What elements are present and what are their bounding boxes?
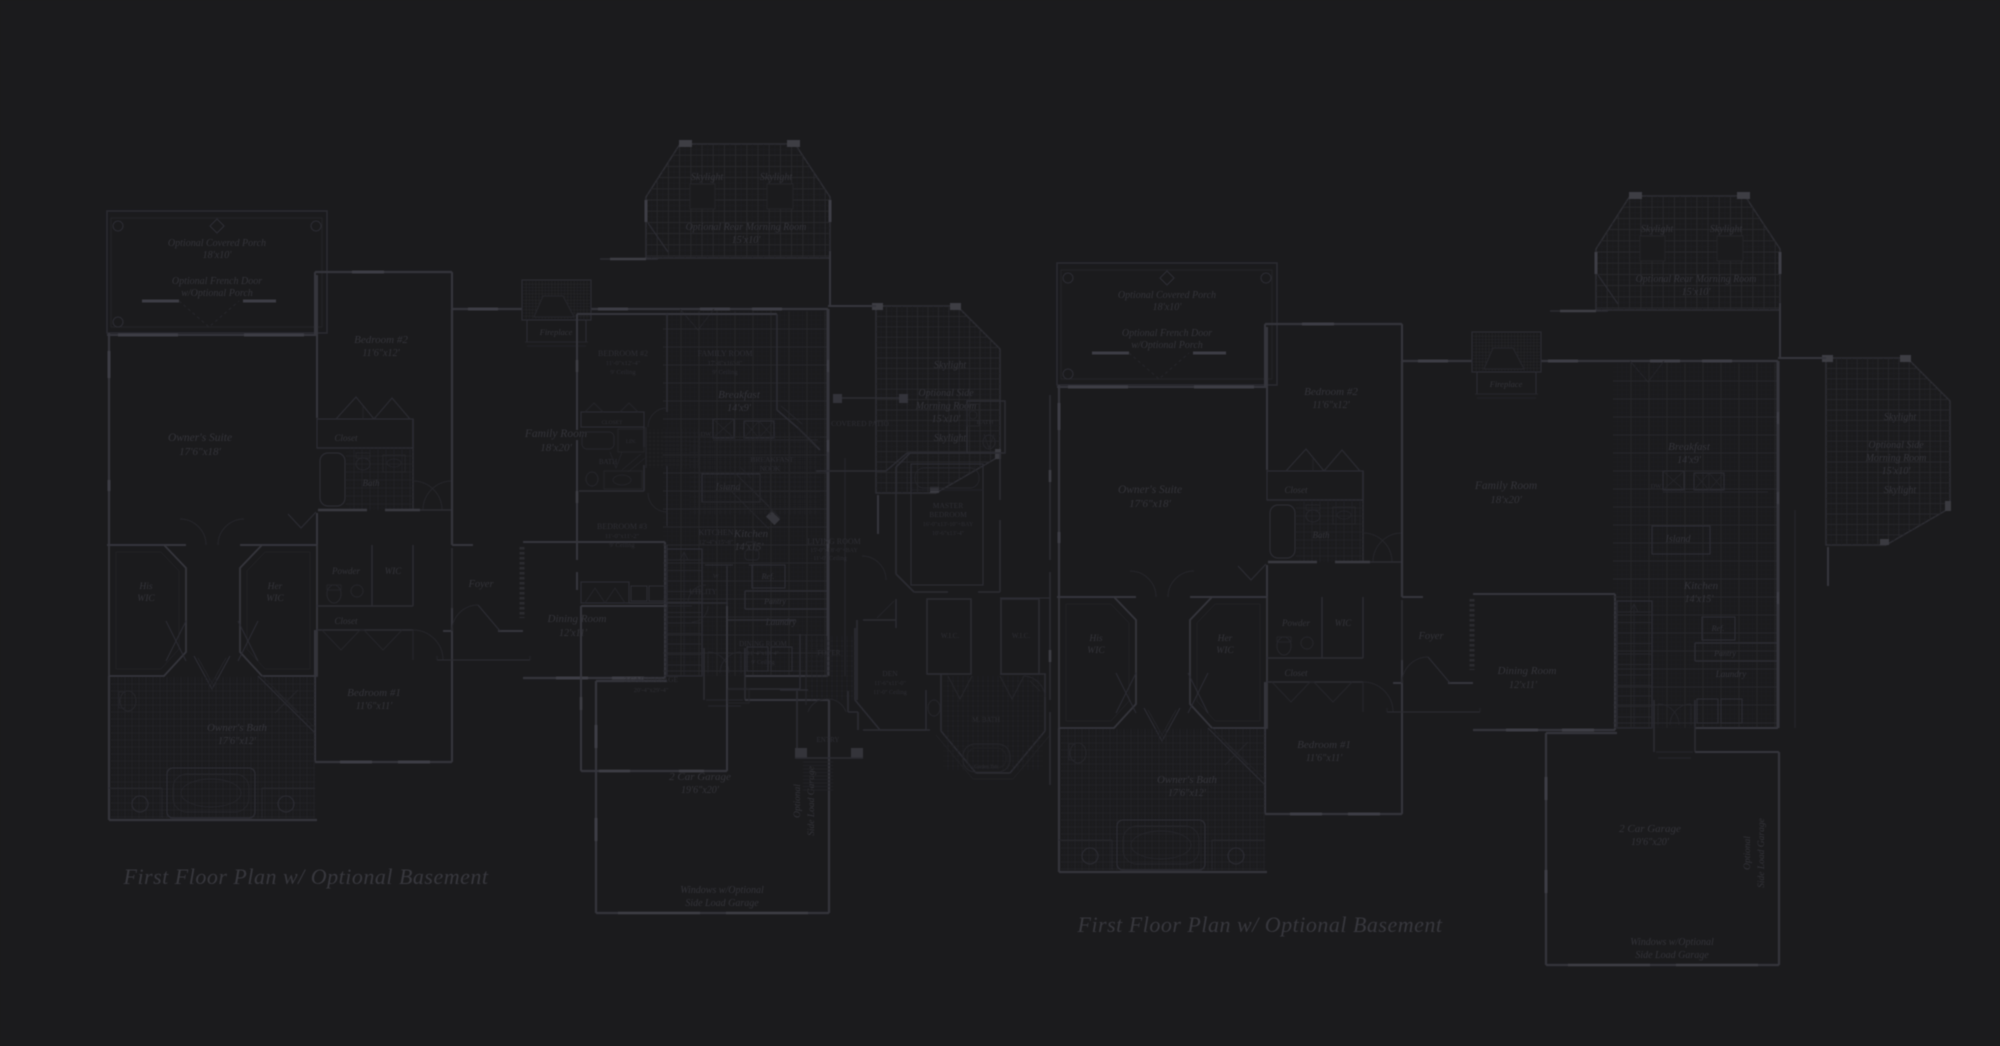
svg-text:Skylight: Skylight <box>934 433 966 444</box>
svg-text:WIC: WIC <box>1216 646 1234 656</box>
svg-text:17'6"x18': 17'6"x18' <box>179 446 221 458</box>
svg-text:Dining Room: Dining Room <box>1497 665 1557 677</box>
svg-text:MASTER: MASTER <box>933 501 963 510</box>
svg-text:WIC: WIC <box>266 594 284 604</box>
svg-text:Optional Side: Optional Side <box>1868 440 1924 451</box>
svg-text:Skylight: Skylight <box>934 360 966 371</box>
svg-text:2 Car Garage: 2 Car Garage <box>1619 823 1681 835</box>
svg-text:Skylight: Skylight <box>1641 224 1673 235</box>
svg-text:WIC: WIC <box>385 566 402 576</box>
svg-text:16'-0"x13'-10"+BAY: 16'-0"x13'-10"+BAY <box>923 522 974 528</box>
svg-text:9' Ceiling: 9' Ceiling <box>712 369 738 376</box>
svg-text:12'x11': 12'x11' <box>1509 680 1538 691</box>
svg-text:11'-0" Ceiling: 11'-0" Ceiling <box>813 556 846 562</box>
svg-text:WIC: WIC <box>1087 646 1105 656</box>
svg-text:BEDROOM: BEDROOM <box>929 510 967 519</box>
svg-text:Closet: Closet <box>1284 668 1308 678</box>
svg-text:BEDROOM #2: BEDROOM #2 <box>598 349 648 358</box>
svg-text:Skylight: Skylight <box>1884 412 1916 423</box>
svg-text:11'6"x12': 11'6"x12' <box>362 348 400 359</box>
svg-text:w/Optional Porch: w/Optional Porch <box>181 288 253 299</box>
svg-text:Owner's Bath: Owner's Bath <box>207 722 268 734</box>
svg-text:17'6"x12': 17'6"x12' <box>1168 788 1207 799</box>
svg-text:Owner's Bath: Owner's Bath <box>1157 774 1218 786</box>
svg-text:Optional Covered Porch: Optional Covered Porch <box>168 238 266 249</box>
svg-text:ENTRY: ENTRY <box>817 736 840 744</box>
svg-text:Side Load Garage: Side Load Garage <box>1757 818 1767 888</box>
svg-text:17'6"x18': 17'6"x18' <box>1129 498 1171 510</box>
svg-text:KITCHEN: KITCHEN <box>698 528 733 537</box>
svg-text:Her: Her <box>1217 634 1233 644</box>
svg-text:Windows w/Optional: Windows w/Optional <box>1630 937 1714 948</box>
svg-text:Bedroom #1: Bedroom #1 <box>1297 739 1351 751</box>
svg-text:Island: Island <box>1665 534 1692 545</box>
svg-text:His: His <box>1088 634 1103 644</box>
svg-text:Kitchen: Kitchen <box>1683 580 1719 592</box>
svg-text:W.I.C.: W.I.C. <box>941 632 959 640</box>
svg-text:Skylight: Skylight <box>760 172 792 183</box>
svg-text:Foyer: Foyer <box>1417 631 1444 642</box>
svg-text:Fireplace: Fireplace <box>539 327 573 337</box>
svg-text:DEN: DEN <box>882 669 898 678</box>
svg-text:UTILITY: UTILITY <box>689 588 717 596</box>
svg-text:18'x10': 18'x10' <box>203 250 233 261</box>
svg-text:Bath: Bath <box>1313 530 1330 540</box>
svg-text:His: His <box>138 582 153 592</box>
svg-text:9' Ceiling: 9' Ceiling <box>751 660 774 666</box>
svg-text:19'6"x20': 19'6"x20' <box>681 785 720 796</box>
svg-text:Ref.: Ref. <box>1711 624 1725 633</box>
svg-text:Closet: Closet <box>334 433 358 443</box>
svg-text:11'-0" Ceiling: 11'-0" Ceiling <box>873 690 906 696</box>
svg-text:14'x15': 14'x15' <box>735 542 765 553</box>
svg-text:Skylight: Skylight <box>691 172 723 183</box>
svg-text:Laundry: Laundry <box>765 617 797 627</box>
svg-text:LIN.: LIN. <box>626 439 637 445</box>
svg-text:Skylight: Skylight <box>1884 485 1916 496</box>
svg-text:Powder: Powder <box>1281 618 1310 628</box>
svg-text:18'x10': 18'x10' <box>1153 302 1183 313</box>
svg-text:15'-0"x18'-0"+BAY: 15'-0"x18'-0"+BAY <box>810 548 858 554</box>
svg-text:14'x9': 14'x9' <box>1677 455 1702 466</box>
svg-text:11'-0"x11'-2": 11'-0"x11'-2" <box>605 533 640 540</box>
svg-text:Fireplace: Fireplace <box>1489 379 1523 389</box>
svg-text:14'x15': 14'x15' <box>1685 594 1715 605</box>
svg-text:LIVING ROOM: LIVING ROOM <box>807 537 861 546</box>
svg-text:11'6"x11': 11'6"x11' <box>356 701 393 712</box>
svg-text:Powder: Powder <box>331 566 360 576</box>
svg-text:First Floor Plan w/ Optional: First Floor Plan w/ Optional Basement <box>1077 912 1443 937</box>
svg-text:Garden Tub: Garden Tub <box>974 765 998 770</box>
svg-text:11'-6"x11'-0": 11'-6"x11'-0" <box>874 681 906 687</box>
svg-text:DINING ROOM: DINING ROOM <box>739 640 787 648</box>
svg-text:11'6"x12': 11'6"x12' <box>1312 400 1350 411</box>
svg-text:9' Ceiling: 9' Ceiling <box>610 369 636 376</box>
svg-text:Owner's Suite: Owner's Suite <box>168 432 232 444</box>
svg-text:Owner's Suite: Owner's Suite <box>1118 484 1182 496</box>
svg-text:15'x10': 15'x10' <box>732 235 762 246</box>
svg-text:CLOSET: CLOSET <box>602 420 623 426</box>
svg-text:M. BATH: M. BATH <box>972 716 1000 724</box>
svg-text:Bath: Bath <box>363 478 380 488</box>
svg-text:18'x20': 18'x20' <box>1490 494 1522 506</box>
svg-text:Optional French Door: Optional French Door <box>172 276 262 287</box>
svg-text:Morning Room: Morning Room <box>1865 453 1927 464</box>
svg-text:Bedroom #2: Bedroom #2 <box>1304 386 1358 398</box>
svg-text:DW: DW <box>1651 483 1663 490</box>
svg-text:WIC: WIC <box>1335 618 1352 628</box>
svg-text:10'-6"x13'-4": 10'-6"x13'-4" <box>932 531 965 537</box>
svg-text:w/Optional Porch: w/Optional Porch <box>1131 340 1203 351</box>
svg-text:Laundry: Laundry <box>1715 669 1747 679</box>
svg-text:Family Room: Family Room <box>1474 480 1537 492</box>
svg-text:Side Load Garage: Side Load Garage <box>685 898 759 909</box>
svg-text:W: W <box>713 574 719 580</box>
svg-text:14'x9': 14'x9' <box>727 403 752 414</box>
svg-text:FOYER: FOYER <box>818 649 841 657</box>
svg-text:17'-8"x16'-8": 17'-8"x16'-8" <box>708 360 743 367</box>
svg-text:Optional: Optional <box>793 784 803 818</box>
svg-text:Bedroom #1: Bedroom #1 <box>347 687 401 699</box>
svg-text:11'-4"x13'-4": 11'-4"x13'-4" <box>747 651 779 657</box>
svg-text:Optional Side: Optional Side <box>918 388 974 399</box>
svg-text:Dining Room: Dining Room <box>547 613 607 625</box>
svg-text:Pantry: Pantry <box>763 597 786 606</box>
svg-text:3 CAR GARAGE: 3 CAR GARAGE <box>624 675 679 684</box>
svg-text:11'6"x11': 11'6"x11' <box>1306 753 1343 764</box>
svg-text:12'x11': 12'x11' <box>559 628 588 639</box>
svg-text:Bedroom #2: Bedroom #2 <box>354 334 408 346</box>
svg-text:FAMILY ROOM: FAMILY ROOM <box>698 349 753 358</box>
svg-text:Skylight: Skylight <box>1710 224 1742 235</box>
svg-text:BEDROOM #3: BEDROOM #3 <box>597 522 647 531</box>
svg-text:WIC: WIC <box>137 594 155 604</box>
svg-text:Side Load Garage: Side Load Garage <box>807 766 817 836</box>
svg-text:2 Car Garage: 2 Car Garage <box>669 771 731 783</box>
svg-text:15'x10': 15'x10' <box>1882 466 1912 477</box>
svg-text:Her: Her <box>267 582 283 592</box>
svg-text:Kitchen: Kitchen <box>733 528 769 540</box>
svg-text:18'x20': 18'x20' <box>540 442 572 454</box>
svg-text:Closet: Closet <box>1284 485 1308 495</box>
svg-text:Optional French Door: Optional French Door <box>1122 328 1212 339</box>
svg-text:BREAKFAST: BREAKFAST <box>750 455 794 464</box>
svg-text:Breakfast: Breakfast <box>718 389 761 401</box>
svg-text:11'-0"x12'-4": 11'-0"x12'-4" <box>606 360 641 367</box>
svg-text:Optional Rear Morning Room: Optional Rear Morning Room <box>686 222 807 233</box>
svg-text:Side Load Garage: Side Load Garage <box>1635 950 1709 961</box>
svg-text:19'6"x20': 19'6"x20' <box>1631 837 1670 848</box>
svg-text:Pantry: Pantry <box>1713 649 1736 658</box>
svg-text:Foyer: Foyer <box>467 579 494 590</box>
svg-text:15'x10': 15'x10' <box>1682 287 1712 298</box>
svg-text:Optional Rear Morning Room: Optional Rear Morning Room <box>1636 274 1757 285</box>
svg-text:15'x10': 15'x10' <box>932 414 962 425</box>
svg-text:Optional: Optional <box>1743 836 1753 870</box>
svg-text:9' Ceiling: 9' Ceiling <box>609 542 635 549</box>
svg-text:Ref.: Ref. <box>761 572 775 581</box>
svg-text:Closet: Closet <box>334 616 358 626</box>
svg-text:Windows w/Optional: Windows w/Optional <box>680 885 764 896</box>
svg-text:Breakfast: Breakfast <box>1668 441 1711 453</box>
svg-text:Optional Covered Porch: Optional Covered Porch <box>1118 290 1216 301</box>
svg-text:20'-4"x29'-4": 20'-4"x29'-4" <box>634 687 669 694</box>
svg-text:17'6"x12': 17'6"x12' <box>218 736 257 747</box>
svg-text:W.I.C.: W.I.C. <box>1012 632 1030 640</box>
svg-text:12'-4"x15'-8": 12'-4"x15'-8" <box>699 539 734 546</box>
svg-text:COVERED PATIO: COVERED PATIO <box>831 419 889 428</box>
svg-text:First Floor Plan w/ Optional: First Floor Plan w/ Optional Basement <box>123 864 489 889</box>
